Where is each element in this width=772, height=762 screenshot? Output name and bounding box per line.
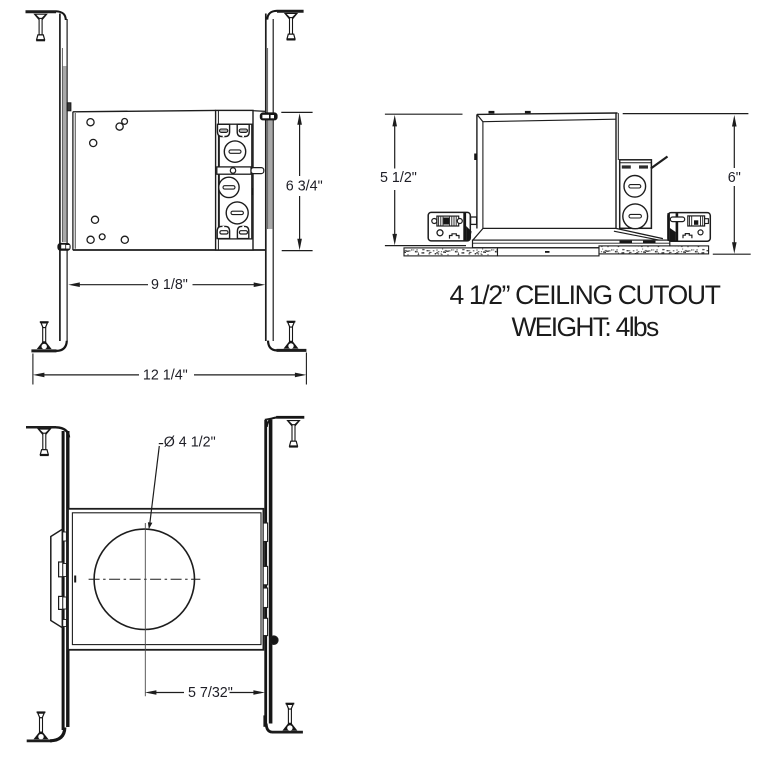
svg-text:5 1/2": 5 1/2": [380, 170, 417, 186]
svg-text:6": 6": [728, 170, 741, 186]
svg-text:5 7/32": 5 7/32": [188, 685, 233, 701]
svg-text:12 1/4": 12 1/4": [143, 367, 188, 383]
svg-text:6 3/4": 6 3/4": [286, 178, 323, 194]
svg-text:WEIGHT: 4lbs: WEIGHT: 4lbs: [512, 312, 659, 342]
svg-text:Ø 4 1/2": Ø 4 1/2": [164, 434, 216, 450]
svg-text:9 1/8": 9 1/8": [151, 277, 188, 293]
svg-text:4 1/2” CEILING CUTOUT: 4 1/2” CEILING CUTOUT: [449, 280, 720, 310]
